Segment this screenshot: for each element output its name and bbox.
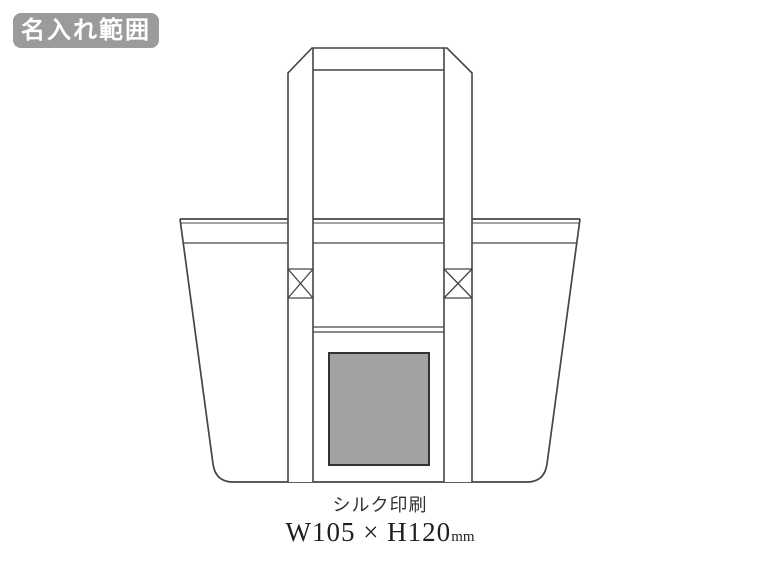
left-strap xyxy=(288,48,313,482)
print-dimensions-unit: mm xyxy=(451,529,474,545)
tote-bag-illustration xyxy=(0,0,760,570)
print-spec-caption: シルク印刷 W105 × H120mm xyxy=(0,495,760,546)
print-dimensions-value: W105 × H120 xyxy=(285,517,451,547)
print-method-label: シルク印刷 xyxy=(0,495,760,516)
pocket-seam-lines xyxy=(313,327,444,332)
bag-rim-lines xyxy=(180,219,580,243)
right-strap xyxy=(444,48,472,482)
print-dimensions-label: W105 × H120mm xyxy=(0,518,760,546)
handle-top-band xyxy=(312,49,447,69)
print-area-guide-canvas: 名入れ範囲 xyxy=(0,0,760,570)
print-area xyxy=(329,353,429,465)
